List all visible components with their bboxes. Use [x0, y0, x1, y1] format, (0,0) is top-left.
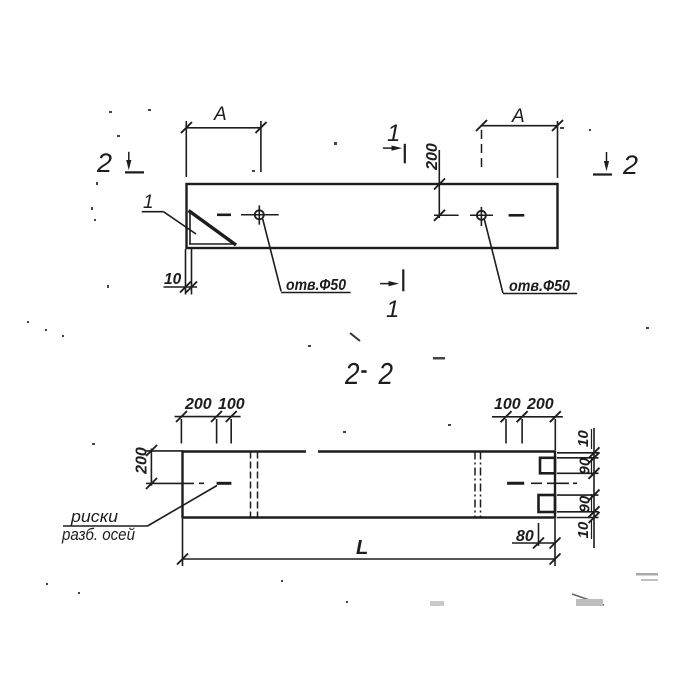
svg-text:200: 200: [526, 396, 554, 413]
svg-text:2: 2: [622, 150, 638, 180]
svg-text:200: 200: [424, 143, 441, 171]
svg-text:2: 2: [344, 356, 359, 391]
svg-text:A: A: [511, 106, 525, 127]
svg-text:отв.Ф50: отв.Ф50: [509, 278, 570, 295]
svg-text:1: 1: [143, 192, 154, 213]
svg-text:10: 10: [575, 521, 592, 538]
svg-text:200: 200: [184, 396, 212, 413]
svg-text:100: 100: [218, 396, 245, 413]
svg-text:L: L: [356, 537, 368, 559]
svg-text:10: 10: [575, 430, 592, 447]
svg-text:разб. осей: разб. осей: [61, 526, 135, 544]
svg-text:10: 10: [164, 271, 182, 288]
svg-text:2: 2: [378, 356, 393, 391]
svg-text:1: 1: [387, 120, 400, 147]
svg-text:отв.Ф50: отв.Ф50: [286, 277, 346, 294]
svg-text:2: 2: [96, 148, 112, 178]
svg-text:A: A: [213, 104, 227, 125]
svg-text:100: 100: [494, 396, 521, 413]
svg-text:риски: риски: [70, 508, 118, 526]
svg-text:1: 1: [386, 296, 399, 323]
